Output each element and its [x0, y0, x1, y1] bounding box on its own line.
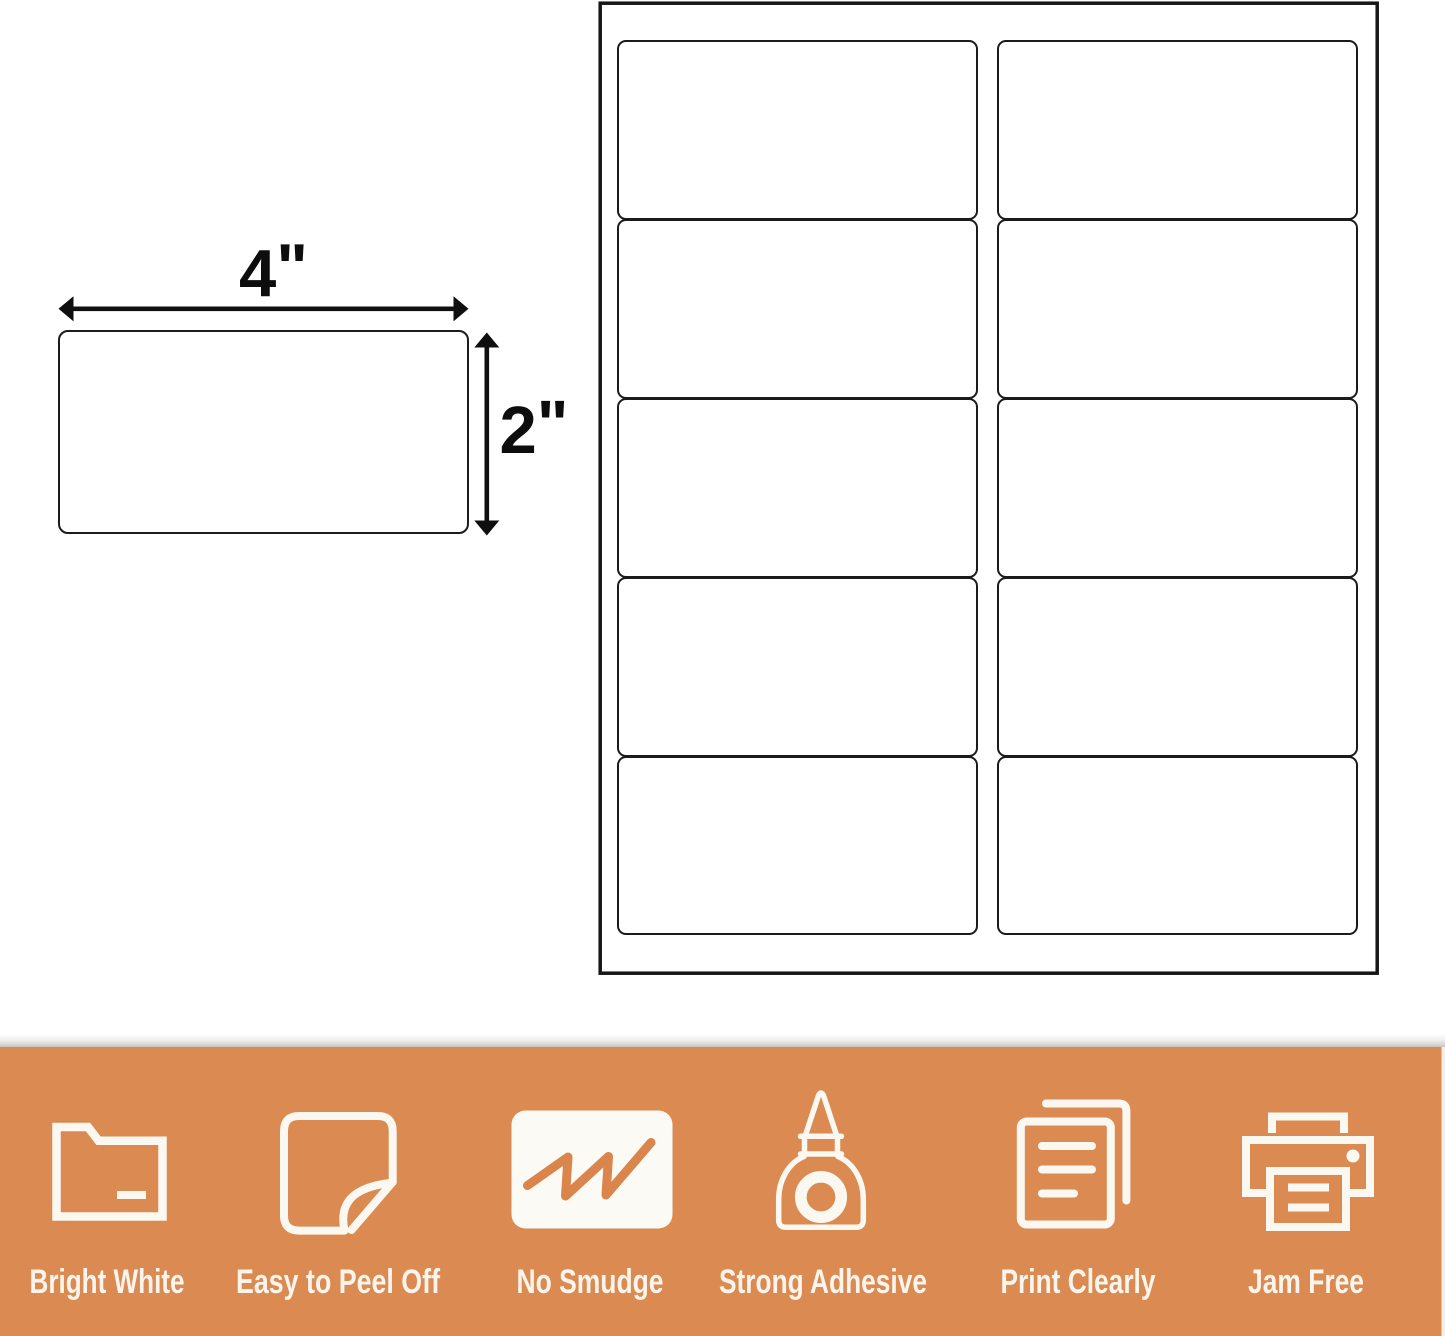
svg-text:Jam Free: Jam Free [1248, 1263, 1364, 1301]
svg-text:Bright White: Bright White [30, 1263, 185, 1301]
svg-text:No Smudge: No Smudge [517, 1263, 664, 1301]
svg-text:4": 4" [239, 231, 308, 312]
svg-text:Easy to Peel Off: Easy to Peel Off [236, 1263, 440, 1301]
svg-text:Strong Adhesive: Strong Adhesive [719, 1263, 927, 1301]
svg-text:2": 2" [499, 387, 568, 468]
svg-text:Print Clearly: Print Clearly [1001, 1263, 1156, 1301]
